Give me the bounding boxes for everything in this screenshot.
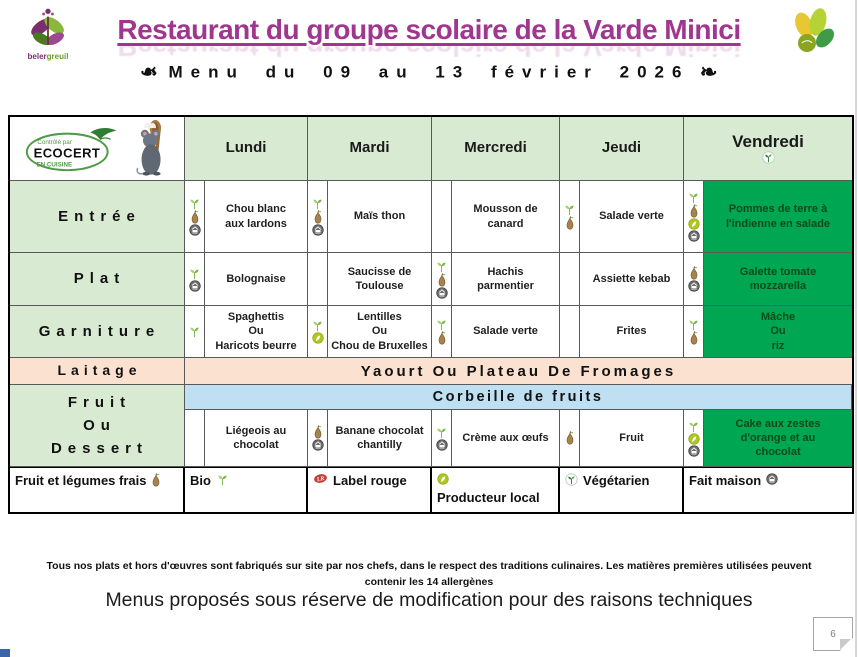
bio-icon [687, 420, 700, 433]
page-number: 6 [830, 629, 836, 640]
icon-strip-plat-mardi [308, 253, 328, 306]
fruit-basket-text: Corbeille de fruits [433, 389, 604, 405]
dish-plat-lundi: Bolognaise [205, 253, 308, 306]
homemade-icon [766, 473, 778, 485]
row-label-garniture: Garniture [10, 306, 185, 358]
bio-icon [311, 319, 324, 332]
vegetarian-icon [565, 473, 578, 486]
dish-text: Chou blanc aux lardons [225, 202, 287, 231]
ecocert-logo: Contrôlé parECOCERTEN CUISINE [23, 123, 123, 175]
dish-text: Spaghettis Ou Haricots beurre [215, 310, 296, 353]
fresh-produce-icon [190, 210, 200, 224]
legend-fait-maison: Fait maison [684, 468, 852, 512]
homemade-icon [436, 439, 448, 451]
bio-icon [563, 203, 576, 216]
icon-strip-plat-vendredi [684, 253, 704, 306]
dish-text: Crème aux œufs [462, 431, 548, 445]
bio-icon [311, 197, 324, 210]
dessert-row: Liégeois au chocolatBanane chocolat chan… [185, 410, 852, 467]
bio-icon [687, 191, 700, 204]
bio-icon [188, 197, 201, 210]
table-header-row: Contrôlé parECOCERTEN CUISINELundiMardiM… [10, 117, 852, 181]
dish-plat-jeudi: Assiette kebab [580, 253, 684, 306]
dish-dessert-jeudi: Fruit [580, 410, 684, 467]
homemade-icon [688, 445, 700, 457]
local-producer-icon [312, 332, 324, 344]
dish-text: Assiette kebab [593, 272, 671, 286]
dish-text: Fruit [619, 431, 643, 445]
local-producer-icon [688, 433, 700, 445]
dish-entr-e-jeudi: Salade verte [580, 181, 684, 253]
homemade-icon [189, 224, 201, 236]
homemade-icon [312, 439, 324, 451]
label-rouge-icon: LR [313, 473, 328, 484]
day-header-lundi: Lundi [185, 117, 308, 181]
menu-table: Contrôlé parECOCERTEN CUISINELundiMardiM… [8, 115, 854, 514]
page-number-box: 6 [813, 617, 853, 651]
fresh-produce-icon [313, 425, 323, 439]
fresh-produce-icon [565, 431, 575, 445]
fruit-dessert-columns: Corbeille de fruitsLiégeois au chocolatB… [185, 385, 852, 467]
dish-garniture-mercredi: Salade verte [452, 306, 560, 358]
dish-entr-e-vendredi: Pommes de terre à l'indienne en salade [704, 181, 852, 253]
rat-chef-mascot-image [133, 120, 171, 178]
icon-strip-dessert-mercredi [432, 410, 452, 467]
icon-strip-garniture-jeudi [560, 306, 580, 358]
icon-strip-garniture-lundi [185, 306, 205, 358]
blue-corner-fragment [0, 649, 10, 657]
row-label-plat: Plat [10, 253, 185, 306]
homemade-icon [189, 280, 201, 292]
legend-v-g-tarien: Végétarien [560, 468, 684, 512]
icon-strip-plat-lundi [185, 253, 205, 306]
legend-label: Fait maison [689, 473, 761, 489]
row-label-laitage: Laitage [10, 358, 185, 385]
dish-text: Salade verte [599, 209, 664, 223]
dish-dessert-mercredi: Crème aux œufs [452, 410, 560, 467]
svg-text:EN CUISINE: EN CUISINE [36, 161, 72, 168]
menu-row-entr-e: EntréeChou blanc aux lardonsMaïs thonMou… [10, 181, 852, 253]
laitage-text: Yaourt Ou Plateau De Fromages [361, 363, 676, 380]
allergen-note: Tous nos plats et hors d'œuvres sont fab… [0, 558, 858, 591]
bio-icon [687, 318, 700, 331]
day-label: Jeudi [602, 140, 641, 157]
homemade-icon [436, 287, 448, 299]
dish-dessert-lundi: Liégeois au chocolat [205, 410, 308, 467]
menu-row-plat: PlatBolognaiseSaucisse de ToulouseHachis… [10, 253, 852, 306]
fresh-produce-icon [151, 473, 161, 487]
legend-label: Fruit et légumes frais [15, 473, 146, 489]
fresh-produce-icon [437, 331, 447, 345]
page-title: Restaurant du groupe scolaire de la Vard… [117, 14, 740, 46]
fresh-produce-icon [689, 204, 699, 218]
dish-text: Maïs thon [354, 209, 405, 223]
menu-row-garniture: GarnitureSpaghettis Ou Haricots beurreLe… [10, 306, 852, 358]
dish-text: Saucisse de Toulouse [348, 265, 412, 294]
icon-strip-dessert-mardi [308, 410, 328, 467]
icon-strip-dessert-lundi [185, 410, 205, 467]
dish-text: Galette tomate mozzarella [740, 265, 816, 294]
title-block: Restaurant du groupe scolaire de la Vard… [0, 14, 858, 61]
icon-strip-entr-e-lundi [185, 181, 205, 253]
legend-fruit-et-l-gumes-frais: Fruit et légumes frais [10, 468, 185, 512]
slide-edge-line [855, 0, 857, 657]
homemade-icon [688, 280, 700, 292]
title-reflection: Restaurant du groupe scolaire de la Vard… [0, 46, 858, 61]
svg-text:ECOCERT: ECOCERT [34, 145, 101, 160]
bio-icon [216, 473, 229, 486]
dish-text: Mâche Ou riz [761, 310, 795, 353]
fleuron-left-icon: ❧ [140, 60, 158, 85]
icon-strip-dessert-vendredi [684, 410, 704, 467]
dish-text: Banane chocolat chantilly [335, 424, 423, 453]
dish-dessert-vendredi: Cake aux zestes d'orange et au chocolat [704, 410, 852, 467]
dish-plat-mercredi: Hachis parmentier [452, 253, 560, 306]
fresh-produce-icon [313, 210, 323, 224]
day-header-mardi: Mardi [308, 117, 432, 181]
dish-entr-e-mercredi: Mousson de canard [452, 181, 560, 253]
dish-text: Cake aux zestes d'orange et au chocolat [736, 417, 821, 460]
icon-strip-garniture-mardi [308, 306, 328, 358]
icon-strip-entr-e-vendredi [684, 181, 704, 253]
dish-text: Lentilles Ou Chou de Bruxelles [331, 310, 428, 353]
laitage-span-cell: Yaourt Ou Plateau De Fromages [185, 358, 852, 385]
modification-disclaimer: Menus proposés sous réserve de modificat… [0, 589, 858, 612]
bio-icon [435, 426, 448, 439]
icon-strip-garniture-vendredi [684, 306, 704, 358]
row-label-entr-e: Entrée [10, 181, 185, 253]
legend-bio: Bio [185, 468, 308, 512]
dish-text: Frites [617, 324, 647, 338]
bio-icon [188, 267, 201, 280]
menu-row-laitage: LaitageYaourt Ou Plateau De Fromages [10, 358, 852, 385]
dish-text: Pommes de terre à l'indienne en salade [726, 202, 830, 231]
icon-strip-entr-e-jeudi [560, 181, 580, 253]
fruit-basket-span-cell: Corbeille de fruits [185, 385, 852, 410]
dish-garniture-lundi: Spaghettis Ou Haricots beurre [205, 306, 308, 358]
subtitle-block: ❧ Menu du 09 au 13 février 2026 ❧ [0, 60, 858, 85]
dish-text: Salade verte [473, 324, 538, 338]
day-label: Lundi [226, 140, 267, 157]
local-producer-icon [688, 218, 700, 230]
dish-garniture-mardi: Lentilles Ou Chou de Bruxelles [328, 306, 432, 358]
bio-icon [188, 325, 201, 338]
dish-text: Liégeois au chocolat [226, 424, 287, 453]
menu-slide-page: belergreuil Restaurant du groupe scolair… [0, 0, 858, 657]
dish-plat-vendredi: Galette tomate mozzarella [704, 253, 852, 306]
day-label: Vendredi [732, 133, 804, 152]
homemade-icon [688, 230, 700, 242]
fresh-produce-icon [689, 331, 699, 345]
dish-entr-e-mardi: Maïs thon [328, 181, 432, 253]
menu-week-subtitle: Menu du 09 au 13 février 2026 [169, 63, 690, 82]
legend-label-rouge: LRLabel rouge [308, 468, 432, 512]
icon-strip-plat-mercredi [432, 253, 452, 306]
icon-strip-entr-e-mardi [308, 181, 328, 253]
legend-label: Bio [190, 473, 211, 489]
legend-producteur-local: Producteur local [432, 468, 560, 512]
table-logo-cell: Contrôlé parECOCERTEN CUISINE [10, 117, 185, 181]
legend-row: Fruit et légumes fraisBioLRLabel rougePr… [10, 467, 852, 512]
menu-row-fruit-ou-dessert: Fruit Ou DessertCorbeille de fruitsLiége… [10, 385, 852, 467]
legend-label: Label rouge [333, 473, 407, 489]
legend-label: Végétarien [583, 473, 649, 489]
icon-strip-entr-e-mercredi [432, 181, 452, 253]
dish-text: Mousson de canard [473, 202, 537, 231]
bio-icon [435, 260, 448, 273]
dish-entr-e-lundi: Chou blanc aux lardons [205, 181, 308, 253]
homemade-icon [312, 224, 324, 236]
legend-label: Producteur local [437, 490, 540, 506]
bio-icon [435, 318, 448, 331]
day-header-vendredi: Vendredi [684, 117, 852, 181]
dish-garniture-jeudi: Frites [580, 306, 684, 358]
dish-text: Bolognaise [226, 272, 285, 286]
day-label: Mardi [349, 140, 389, 157]
dish-plat-mardi: Saucisse de Toulouse [328, 253, 432, 306]
allergen-note-line1: Tous nos plats et hors d'œuvres sont fab… [0, 558, 858, 574]
fresh-produce-icon [437, 273, 447, 287]
day-label: Mercredi [464, 140, 527, 157]
dish-dessert-mardi: Banane chocolat chantilly [328, 410, 432, 467]
fleuron-right-icon: ❧ [700, 60, 718, 85]
day-header-jeudi: Jeudi [560, 117, 684, 181]
fresh-produce-icon [565, 216, 575, 230]
day-header-mercredi: Mercredi [432, 117, 560, 181]
local-producer-icon [437, 473, 449, 485]
icon-strip-garniture-mercredi [432, 306, 452, 358]
vegetarian-icon [762, 151, 775, 164]
dish-garniture-vendredi: Mâche Ou riz [704, 306, 852, 358]
row-label-fruit-ou-dessert: Fruit Ou Dessert [10, 385, 185, 467]
fresh-produce-icon [689, 266, 699, 280]
icon-strip-plat-jeudi [560, 253, 580, 306]
dish-text: Hachis parmentier [477, 265, 534, 294]
icon-strip-dessert-jeudi [560, 410, 580, 467]
svg-text:LR: LR [315, 476, 325, 484]
